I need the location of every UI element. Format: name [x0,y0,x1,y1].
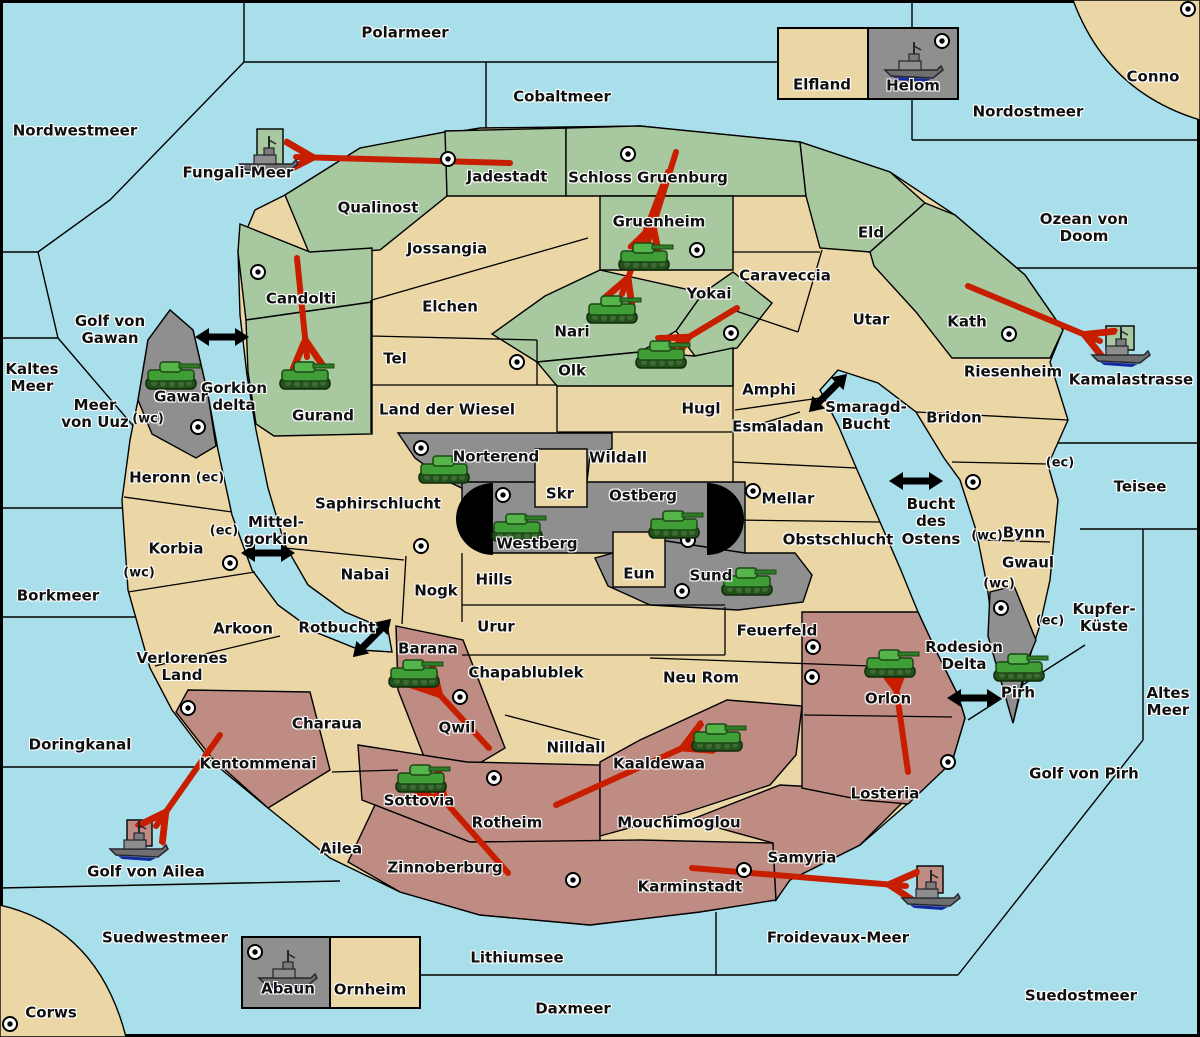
coast-tag: (wc) [123,567,155,582]
sea-label[interactable]: Altes Meer [1146,685,1189,720]
territory-label[interactable]: Conno [1127,68,1180,85]
sea-label[interactable]: Rodesion Delta [925,639,1003,674]
sea-label[interactable]: Froidevaux-Meer [767,929,909,946]
territory-label[interactable]: Heronn [129,469,191,486]
coast-tag: (ec) [1046,457,1074,472]
territory-label[interactable]: Jadestadt [467,168,548,185]
territory-label[interactable]: Gawar [154,388,208,405]
territory-label[interactable]: Kaaldewaa [613,755,705,772]
territory-label[interactable]: Obstschlucht [783,531,894,548]
territory-label[interactable]: Karminstadt [638,878,743,895]
sea-label[interactable]: Suedostmeer [1025,987,1137,1004]
territory-label[interactable]: Rotheim [472,814,543,831]
territory-label[interactable]: Gwaul [1002,554,1054,571]
sea-label[interactable]: Cobaltmeer [513,88,611,105]
territory-label[interactable]: Verlorenes Land [136,650,227,685]
coast-tag: (wc) [971,530,1003,545]
sea-label[interactable]: Daxmeer [535,1000,611,1017]
territory-label[interactable]: Wildall [589,449,647,466]
territory-label[interactable]: Mellar [762,490,815,507]
territory-label[interactable]: Charaua [292,715,362,732]
territory-label[interactable]: Jossangia [407,240,488,257]
territory-label[interactable]: Ornheim [334,981,406,998]
territory-label[interactable]: Gruenheim [613,213,706,230]
territory-label[interactable]: Elchen [422,298,478,315]
territory-label[interactable]: Nabai [341,566,390,583]
territory-label[interactable]: Norterend [453,448,540,465]
sea-label[interactable]: Gorkion delta [201,380,267,415]
territory-label[interactable]: Esmaladan [732,418,824,435]
sea-label[interactable]: Lithiumsee [470,949,563,966]
sea-label[interactable]: Kaltes Meer [5,361,58,396]
territory-label[interactable]: Bynn [1003,524,1046,541]
territory-label[interactable]: Abaun [261,980,315,997]
territory-label[interactable]: Elfland [793,76,851,93]
territory-label[interactable]: Skr [546,485,574,502]
sea-label[interactable]: Kupfer- Küste [1072,601,1135,636]
game-map: PolarmeerCobaltmeerNordostmeerNordwestme… [0,0,1200,1037]
coast-tag: (ec) [210,525,238,540]
territory-label[interactable]: Kentommenai [199,755,316,772]
territory-label[interactable]: Nilldall [546,739,605,756]
territory-label[interactable]: Chapablublek [468,664,583,681]
territory-label[interactable]: Hills [476,571,513,588]
territory-label[interactable]: Nari [554,323,589,340]
territory-label[interactable]: Mouchimoglou [617,814,740,831]
sea-label[interactable]: Bucht des Ostens [902,496,961,548]
territory-label[interactable]: Bridon [926,409,982,426]
territory-label[interactable]: Olk [558,362,586,379]
sea-label[interactable]: Meer von Uuz [61,397,129,432]
territory-label[interactable]: Barana [398,640,458,657]
territory-label[interactable]: Zinnoberburg [387,859,503,876]
territory-label[interactable]: Ostberg [609,487,677,504]
territory-label[interactable]: Candolti [266,290,336,307]
territory-label[interactable]: Losteria [851,785,920,802]
territory-label[interactable]: Amphi [742,381,796,398]
territory-label[interactable]: Tel [383,350,407,367]
territory-label[interactable]: Yokai [686,285,731,302]
territory-label[interactable]: Hugl [681,400,720,417]
territory-label[interactable]: Nogk [414,582,458,599]
territory-label[interactable]: Eld [858,224,884,241]
sea-label[interactable]: Golf von Pirh [1029,765,1139,782]
territory-label[interactable]: Riesenheim [964,363,1062,380]
label-layer: PolarmeerCobaltmeerNordostmeerNordwestme… [0,0,1200,1037]
territory-label[interactable]: Urur [477,618,515,635]
coast-tag: (ec) [196,472,224,487]
sea-label[interactable]: Doringkanal [29,736,132,753]
territory-label[interactable]: Qwil [439,719,476,736]
territory-label[interactable]: Saphirschlucht [315,495,441,512]
territory-label[interactable]: Westberg [496,535,577,552]
sea-label[interactable]: Suedwestmeer [102,929,228,946]
territory-label[interactable]: Pirh [1001,684,1035,701]
sea-label[interactable]: Golf von Ailea [87,863,205,880]
sea-label[interactable]: Kamalastrasse [1069,371,1193,388]
sea-label[interactable]: Nordwestmeer [13,122,138,139]
territory-label[interactable]: Orlon [865,690,911,707]
sea-label[interactable]: Polarmeer [361,24,448,41]
territory-label[interactable]: Neu Rom [663,669,739,686]
territory-label[interactable]: Korbia [148,540,203,557]
territory-label[interactable]: Land der Wiesel [379,401,515,418]
territory-label[interactable]: Caraveccia [739,267,831,284]
sea-label[interactable]: Ozean von Doom [1026,211,1142,246]
territory-label[interactable]: Utar [853,311,890,328]
sea-label[interactable]: Rotbucht [298,619,375,636]
sea-label[interactable]: Mittel- gorkion [244,514,309,549]
territory-label[interactable]: Arkoon [213,620,273,637]
territory-label[interactable]: Samyria [768,849,837,866]
sea-label[interactable]: Teisee [1114,478,1167,495]
territory-label[interactable]: Ailea [320,840,362,857]
coast-tag: (wc) [983,578,1015,593]
territory-label[interactable]: Corws [25,1004,77,1021]
territory-label[interactable]: Sottovia [384,792,455,809]
coast-tag: (wc) [132,413,164,428]
territory-label[interactable]: Kath [947,313,987,330]
territory-label[interactable]: Gurand [292,407,354,424]
territory-label[interactable]: Schloss Gruenburg [568,169,728,186]
sea-label[interactable]: Smaragd- Bucht [825,399,907,434]
territory-label[interactable]: Qualinost [338,199,419,216]
sea-label[interactable]: Nordostmeer [973,103,1084,120]
sea-label[interactable]: Fungali-Meer [183,164,294,181]
territory-label[interactable]: Feuerfeld [737,622,818,639]
sea-label[interactable]: Golf von Gawan [75,313,145,348]
territory-label[interactable]: Sund [690,567,733,584]
territory-label[interactable]: Helom [886,77,940,94]
territory-label[interactable]: Eun [623,565,655,582]
coast-tag: (ec) [1036,615,1064,630]
sea-label[interactable]: Borkmeer [17,587,100,604]
